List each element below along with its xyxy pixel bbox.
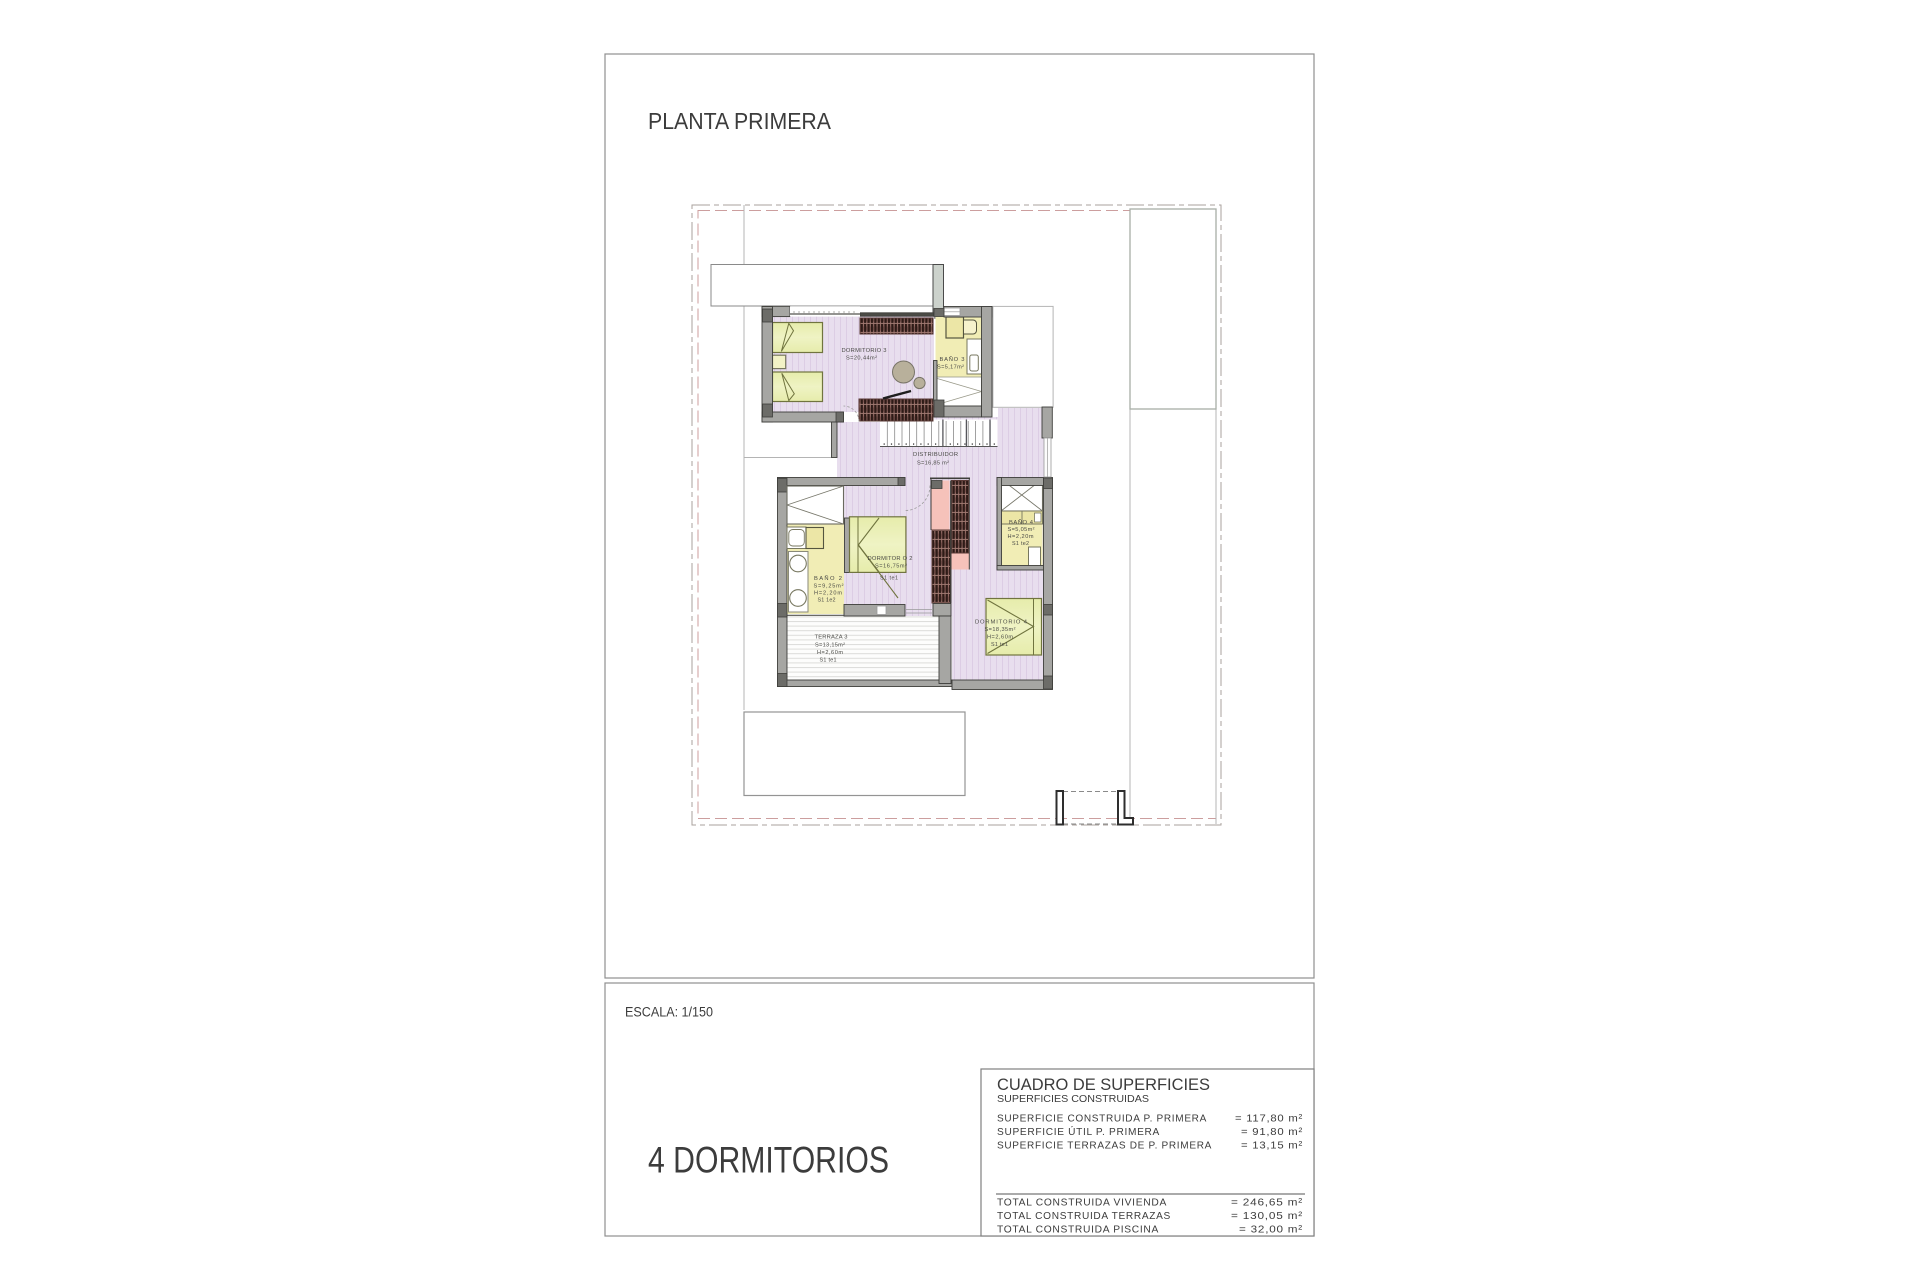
svg-text:PLANTA PRIMERA: PLANTA PRIMERA bbox=[648, 108, 832, 134]
svg-text:S=5,17m²: S=5,17m² bbox=[937, 365, 964, 371]
svg-text:SUPERFICIE TERRAZAS DE P. PRIM: SUPERFICIE TERRAZAS DE P. PRIMERA bbox=[997, 1140, 1212, 1152]
svg-text:S=16,85 m²: S=16,85 m² bbox=[917, 461, 949, 467]
svg-text:DORMITOR O 2: DORMITOR O 2 bbox=[868, 556, 913, 562]
svg-text:S1 te1: S1 te1 bbox=[991, 642, 1008, 648]
svg-text:S=13,15m²: S=13,15m² bbox=[815, 643, 845, 649]
svg-text:S1 te1: S1 te1 bbox=[880, 576, 898, 582]
svg-text:= 13,15 m²: = 13,15 m² bbox=[1241, 1140, 1303, 1152]
svg-text:TOTAL CONSTRUIDA PISCINA: TOTAL CONSTRUIDA PISCINA bbox=[997, 1224, 1159, 1236]
svg-text:S1 te1: S1 te1 bbox=[820, 658, 837, 664]
svg-text:S=5,05m²: S=5,05m² bbox=[1008, 527, 1035, 533]
svg-text:4 DORMITORIOS: 4 DORMITORIOS bbox=[648, 1140, 889, 1181]
svg-text:S=20,44m²: S=20,44m² bbox=[846, 356, 877, 362]
svg-text:TERRAZA 3: TERRAZA 3 bbox=[815, 635, 848, 641]
svg-text:S1 1e2: S1 1e2 bbox=[818, 598, 836, 604]
svg-text:S=9,25m²: S=9,25m² bbox=[814, 584, 844, 590]
svg-text:CUADRO DE SUPERFICIES: CUADRO DE SUPERFICIES bbox=[997, 1076, 1210, 1094]
svg-text:SUPERFICIE CONSTRUIDA P. PRIME: SUPERFICIE CONSTRUIDA P. PRIMERA bbox=[997, 1113, 1207, 1125]
svg-text:S1 te2: S1 te2 bbox=[1012, 541, 1029, 547]
svg-text:DORMITORIO 3: DORMITORIO 3 bbox=[842, 348, 887, 354]
svg-text:H=2,60m: H=2,60m bbox=[817, 650, 843, 656]
svg-text:SUPERFICIE ÚTIL P. PRIMERA: SUPERFICIE ÚTIL P. PRIMERA bbox=[997, 1125, 1160, 1138]
svg-text:H=2,20m: H=2,20m bbox=[1008, 534, 1034, 540]
svg-text:S=18,35m²: S=18,35m² bbox=[985, 627, 1016, 633]
svg-text:H=2,20m: H=2,20m bbox=[814, 591, 842, 597]
svg-text:H=2,60m: H=2,60m bbox=[987, 635, 1013, 641]
svg-text:= 246,65 m²: = 246,65 m² bbox=[1231, 1197, 1303, 1209]
svg-text:= 130,05 m²: = 130,05 m² bbox=[1231, 1210, 1303, 1222]
svg-text:TOTAL CONSTRUIDA TERRAZAS: TOTAL CONSTRUIDA TERRAZAS bbox=[997, 1210, 1171, 1222]
svg-text:ESCALA: 1/150: ESCALA: 1/150 bbox=[625, 1005, 713, 1020]
svg-text:= 117,80 m²: = 117,80 m² bbox=[1235, 1113, 1303, 1125]
svg-text:= 32,00 m²: = 32,00 m² bbox=[1239, 1224, 1303, 1236]
svg-text:= 91,80 m²: = 91,80 m² bbox=[1241, 1126, 1303, 1138]
svg-text:DORMITORIO 4: DORMITORIO 4 bbox=[975, 620, 1028, 626]
svg-text:BAÑO 4: BAÑO 4 bbox=[1009, 519, 1034, 526]
svg-text:SUPERFICIES CONSTRUIDAS: SUPERFICIES CONSTRUIDAS bbox=[997, 1093, 1149, 1105]
svg-text:DISTRIBUIDOR: DISTRIBUIDOR bbox=[913, 452, 958, 458]
svg-text:BAÑO 3: BAÑO 3 bbox=[940, 356, 965, 363]
svg-text:S=16,75m²: S=16,75m² bbox=[875, 564, 907, 570]
svg-text:TOTAL CONSTRUIDA VIVIENDA: TOTAL CONSTRUIDA VIVIENDA bbox=[997, 1197, 1167, 1209]
